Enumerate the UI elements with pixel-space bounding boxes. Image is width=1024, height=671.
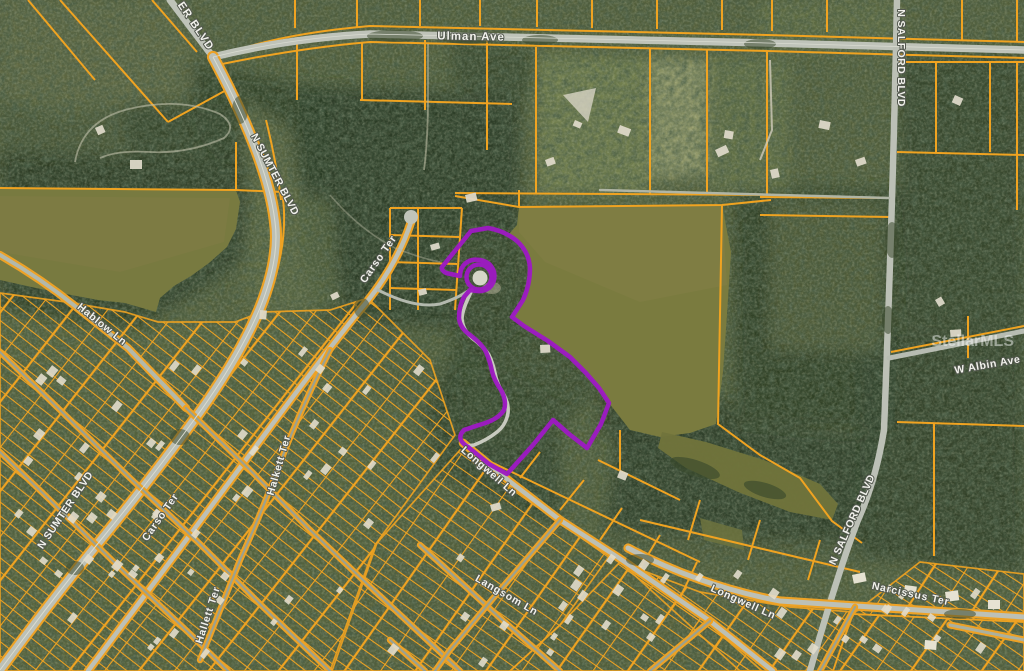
svg-text:Ulman Ave: Ulman Ave [437,30,505,43]
svg-text:StellarMLS: StellarMLS [931,333,1014,350]
svg-text:N SALFORD BLVD: N SALFORD BLVD [895,9,907,107]
